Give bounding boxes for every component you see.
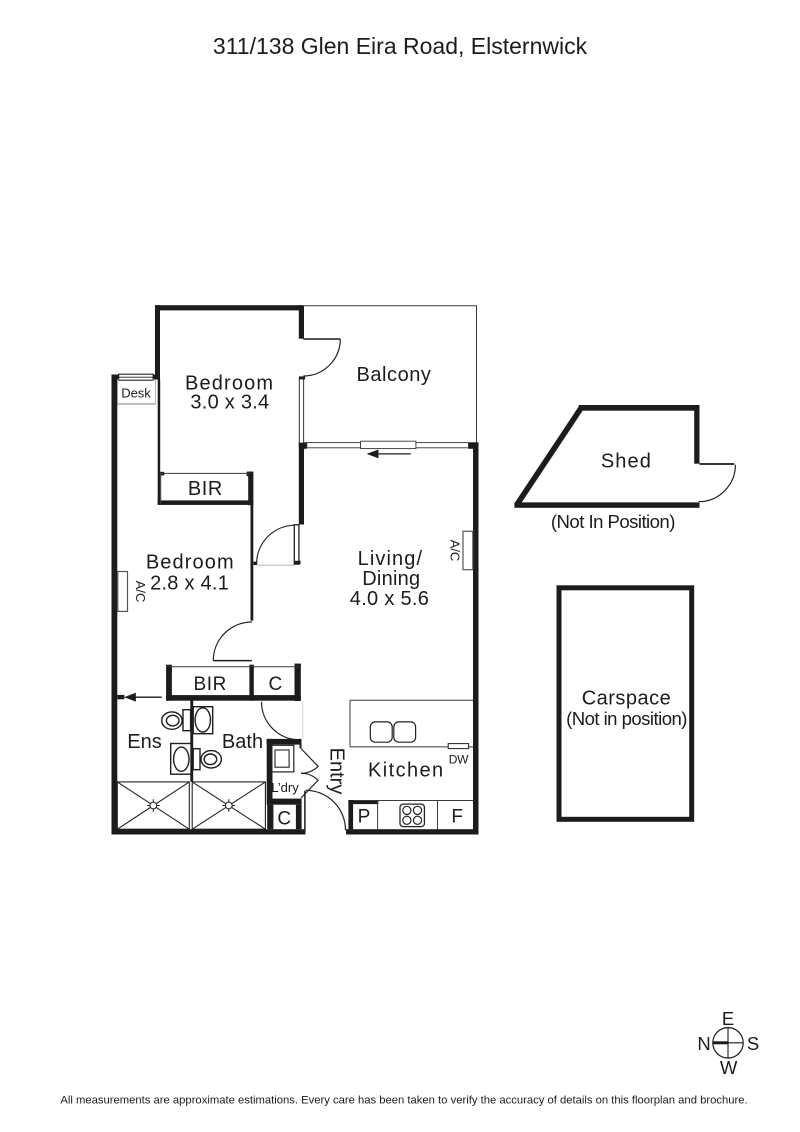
svg-text:Desk: Desk [121, 385, 151, 400]
svg-text:F: F [451, 807, 463, 828]
svg-text:Kitchen: Kitchen [368, 759, 445, 781]
svg-text:Entry: Entry [326, 748, 348, 795]
svg-text:(Not In Position): (Not In Position) [551, 511, 675, 532]
svg-text:(Not in position): (Not in position) [566, 708, 687, 729]
svg-text:DW: DW [449, 752, 469, 766]
svg-text:311/138 Glen Eira Road, Elster: 311/138 Glen Eira Road, Elsternwick [213, 33, 588, 59]
svg-text:BIR: BIR [188, 478, 223, 500]
svg-text:A/C: A/C [133, 581, 148, 603]
svg-text:Carspace: Carspace [582, 688, 672, 710]
svg-text:BIR: BIR [193, 674, 226, 695]
svg-text:E: E [722, 1008, 734, 1029]
svg-text:All measurements are approxima: All measurements are approximate estimat… [60, 1095, 747, 1107]
svg-text:W: W [720, 1057, 738, 1078]
svg-text:Living/: Living/ [358, 548, 424, 570]
svg-text:N: N [697, 1033, 710, 1054]
svg-text:C: C [269, 674, 283, 695]
svg-text:Ens: Ens [127, 731, 161, 753]
svg-text:3.0 x 3.4: 3.0 x 3.4 [190, 392, 269, 414]
svg-text:Dining: Dining [362, 568, 420, 590]
svg-text:P: P [358, 807, 371, 828]
svg-text:A/C: A/C [448, 540, 463, 562]
svg-text:2.8 x 4.1: 2.8 x 4.1 [150, 573, 229, 595]
svg-text:Bedroom: Bedroom [146, 551, 235, 573]
svg-text:S: S [747, 1033, 759, 1054]
svg-text:Bath: Bath [222, 731, 263, 753]
svg-text:L’dry: L’dry [271, 780, 299, 795]
svg-text:Balcony: Balcony [356, 364, 431, 386]
svg-text:Shed: Shed [601, 450, 652, 472]
svg-text:C: C [277, 808, 291, 829]
svg-text:4.0 x 5.6: 4.0 x 5.6 [350, 588, 429, 610]
